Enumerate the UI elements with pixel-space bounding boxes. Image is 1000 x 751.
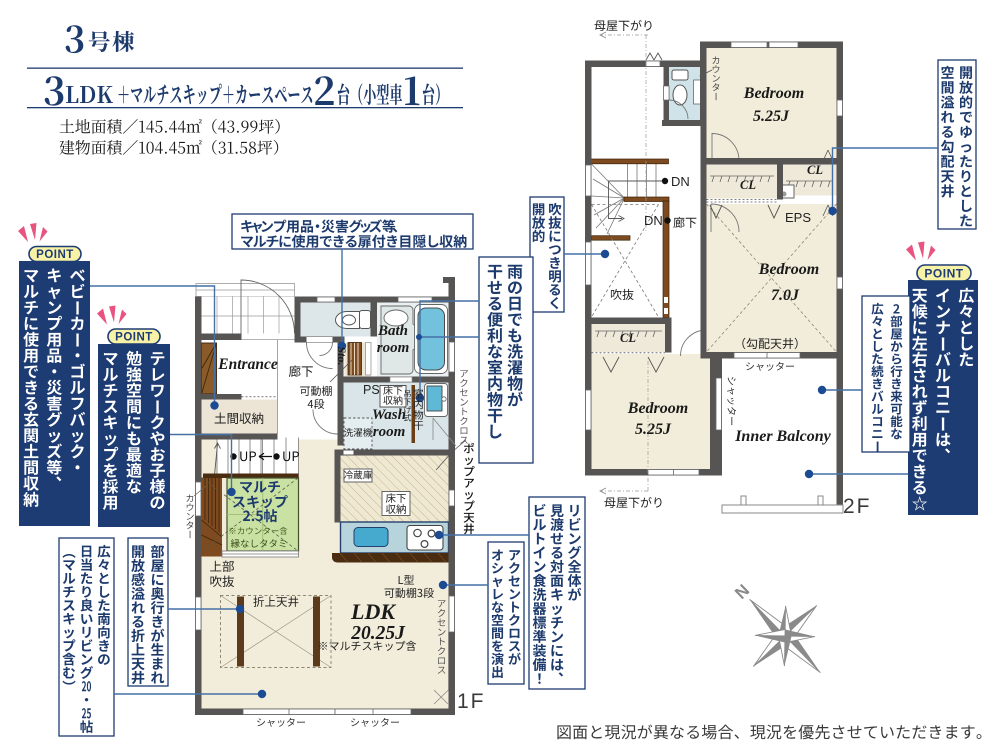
svg-text:Entrance: Entrance <box>217 356 278 373</box>
svg-text:POINT: POINT <box>36 249 74 261</box>
svg-text:Wash: Wash <box>372 407 406 423</box>
svg-text:Bedroom: Bedroom <box>758 261 819 278</box>
svg-text:POINT: POINT <box>115 332 153 344</box>
svg-text:Bedroom: Bedroom <box>627 400 688 417</box>
svg-text:1F: 1F <box>457 690 486 713</box>
svg-text:Bath: Bath <box>377 323 408 339</box>
svg-text:CL: CL <box>740 178 756 192</box>
svg-text:CL: CL <box>807 163 823 177</box>
svg-text:DN: DN <box>644 213 663 228</box>
svg-text:7.0J: 7.0J <box>771 287 800 304</box>
svg-text:Inner Balcony: Inner Balcony <box>734 428 831 445</box>
svg-text:DN: DN <box>671 174 690 189</box>
svg-text:LDK: LDK <box>350 599 396 624</box>
svg-text:EPS: EPS <box>785 210 811 225</box>
svg-text:5.25J: 5.25J <box>753 108 790 125</box>
svg-text:CL: CL <box>620 331 636 345</box>
svg-text:20.25J: 20.25J <box>350 623 406 644</box>
svg-text:room: room <box>373 424 406 440</box>
svg-text:2F: 2F <box>843 495 872 518</box>
svg-text:PS: PS <box>363 383 380 397</box>
svg-text:room: room <box>377 340 410 356</box>
svg-text:Sto.: Sto. <box>335 346 349 365</box>
svg-text:POINT: POINT <box>924 267 963 281</box>
svg-text:Bedroom: Bedroom <box>743 85 804 102</box>
svg-text:5.25J: 5.25J <box>635 421 672 438</box>
